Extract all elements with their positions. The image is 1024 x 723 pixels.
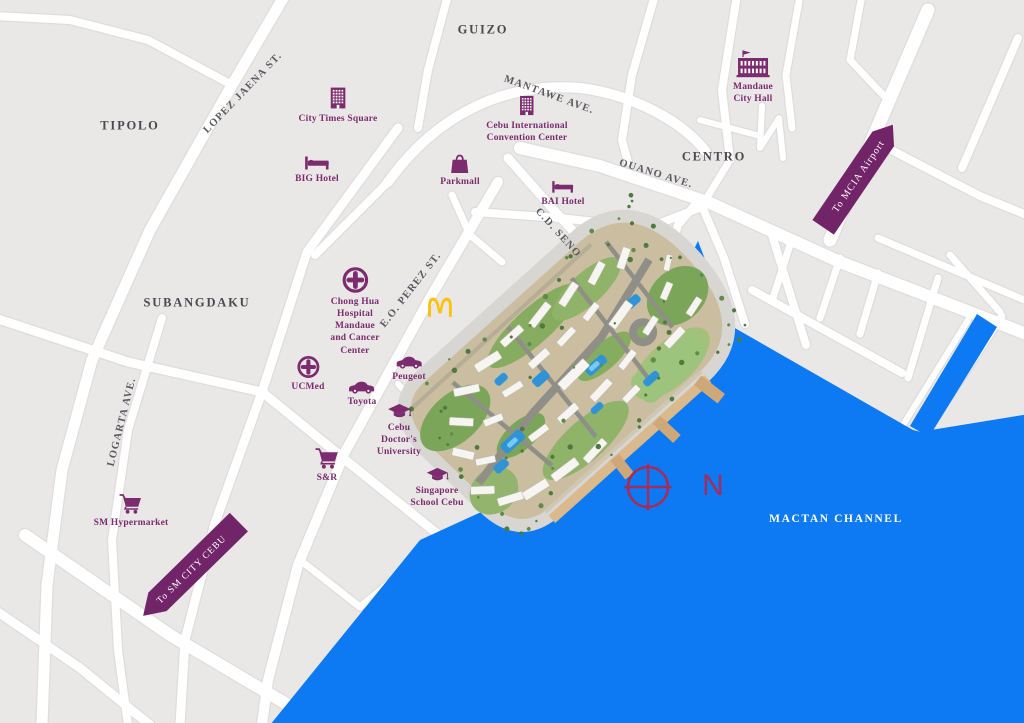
- poi-label: Toyota: [348, 396, 377, 408]
- poi-label: BIG Hotel: [295, 173, 339, 185]
- building-icon: [325, 85, 350, 111]
- poi-singapore-school-cebu: Singapore School Cebu: [410, 467, 463, 509]
- poi-label: Chong Hua Hospital Mandaue and Cancer Ce…: [330, 296, 379, 357]
- poi-label: Parkmall: [440, 176, 480, 188]
- poi-label: Mandaue City Hall: [733, 81, 773, 105]
- mcdonalds-arches-icon: [427, 295, 454, 318]
- poi-label: Singapore School Cebu: [410, 485, 463, 509]
- poi-ucmed: UCMed: [291, 355, 324, 393]
- poi-cebu-doctors-university: Cebu Doctor's University: [377, 403, 421, 458]
- poi-label: BAI Hotel: [541, 196, 584, 208]
- poi-peugeot: Peugeot: [392, 352, 426, 383]
- poi-label: SM Hypermarket: [94, 517, 169, 529]
- building-icon: [516, 93, 539, 118]
- poi-city-times-square: City Times Square: [299, 85, 378, 125]
- hotel-bed-icon: [304, 153, 330, 171]
- shopping-cart-icon: [119, 493, 143, 515]
- shopping-bag-icon: [450, 153, 469, 174]
- poi-label: Cebu Doctor's University: [377, 422, 421, 458]
- poi-mandaue-city-hall: Mandaue City Hall: [733, 49, 773, 105]
- poi-mcdonalds: [427, 295, 454, 320]
- poi-chong-hua-hospital: Chong Hua Hospital Mandaue and Cancer Ce…: [330, 266, 379, 357]
- poi-label: S&R: [317, 472, 338, 484]
- city-hall-icon: [736, 49, 770, 79]
- poi-label: Peugeot: [392, 371, 426, 383]
- car-icon: [395, 352, 423, 369]
- vicinity-map: To MCIA Airport To SM CITY CEBU TIPOLO G…: [0, 0, 1024, 723]
- poi-label: UCMed: [291, 381, 324, 393]
- car-icon: [348, 377, 376, 394]
- poi-bai-hotel: BAI Hotel: [541, 178, 584, 208]
- graduation-cap-icon: [387, 403, 412, 420]
- poi-sm-hypermarket: SM Hypermarket: [94, 493, 169, 529]
- hotel-bed-icon: [551, 178, 574, 194]
- poi-cebu-international-convention-center: Cebu International Convention Center: [486, 93, 567, 144]
- poi-parkmall: Parkmall: [440, 153, 480, 188]
- poi-label: Cebu International Convention Center: [486, 120, 567, 144]
- hospital-cross-icon: [341, 266, 369, 294]
- shopping-cart-icon: [315, 447, 340, 470]
- poi-s-and-r: S&R: [315, 447, 340, 484]
- poi-label: City Times Square: [299, 113, 378, 125]
- poi-toyota: Toyota: [348, 377, 377, 408]
- poi-big-hotel: BIG Hotel: [295, 153, 339, 185]
- graduation-cap-icon: [425, 467, 449, 483]
- hospital-cross-icon: [296, 355, 320, 379]
